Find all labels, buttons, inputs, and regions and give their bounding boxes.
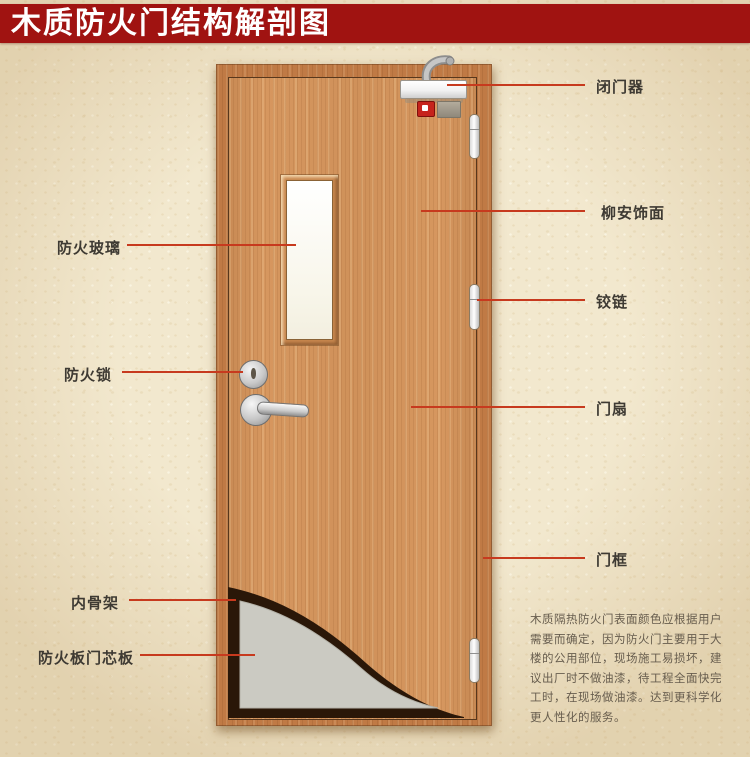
callout-label-fire-glass: 防火玻璃 [57,237,121,258]
callout-line-fire-glass [127,244,296,246]
callout-label-veneer: 柳安饰面 [601,202,665,223]
door-cutaway-section [228,575,475,718]
callout-label-door-frame: 门框 [596,549,628,570]
alarm-indicator [417,101,435,117]
callout-label-door-closer: 闭门器 [596,76,644,97]
fireboard-core-panel [240,601,438,708]
vision-panel-frame [281,175,338,345]
callout-line-door-closer [447,84,585,86]
callout-line-door-leaf [411,406,585,408]
page-title: 木质防火门结构解剖图 [11,7,331,41]
callout-line-core-board [140,654,255,656]
callout-label-inner-frame: 内骨架 [71,592,119,613]
callout-line-inner-frame [129,599,236,601]
keyhole [251,368,256,379]
door-closer-body [400,80,467,99]
description-note: 木质隔热防火门表面颜色应根据用户需要而确定，因为防火门主要用于大楼的公用部位，现… [530,611,722,729]
callout-line-veneer [421,210,585,212]
alarm-indicator-light [422,105,428,111]
callout-label-hinge: 铰链 [596,291,628,312]
fire-lock-cylinder [239,360,268,389]
callout-label-door-leaf: 门扇 [596,398,628,419]
callout-line-hinge [477,299,585,301]
fire-door-illustration [216,64,492,726]
title-banner: 木质防火门结构解剖图 [0,4,750,43]
callout-line-door-frame [483,557,585,559]
callout-label-core-board: 防火板门芯板 [38,647,134,668]
hinge-top [469,114,480,159]
hinge-middle [469,284,480,330]
hinge-bottom [469,638,480,683]
callout-label-fire-lock: 防火锁 [64,364,112,385]
cutaway-graphic [228,575,475,718]
fire-glass-pane [286,180,333,340]
electric-strike-box [437,101,461,118]
door-closer-arm [413,55,461,83]
callout-line-fire-lock [122,371,243,373]
